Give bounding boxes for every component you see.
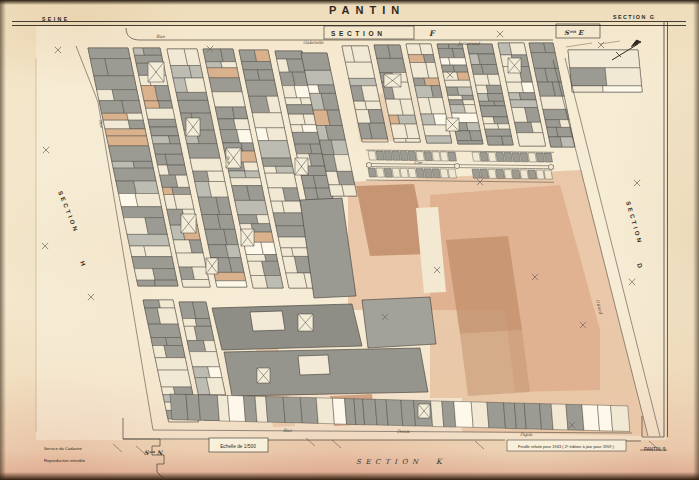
street-label-rue-north: Rue (156, 34, 165, 39)
office-line2: Reproduction interdite (44, 458, 86, 463)
east-section-word: SECTION (625, 201, 643, 246)
west-section-letter: H (79, 260, 87, 267)
map-title: PANTIN (329, 4, 405, 16)
south-section-letter: K (436, 457, 443, 466)
street-label-josserand: Josserand (457, 41, 481, 46)
office-line1: Service du Cadastre (44, 446, 83, 451)
northeast-section-label: Sᵒⁿ E (564, 29, 585, 37)
street-label-gabrielle: Gabrielle (303, 40, 324, 45)
cadastral-map-sheet: SEINE PANTIN SECTION G SECTION F Sᵒⁿ E S… (0, 0, 699, 480)
scale-label: Echelle de 1/500 (220, 444, 256, 449)
south-section-word: SECTION (356, 458, 423, 466)
map-drawing: SEINE PANTIN SECTION G SECTION F Sᵒⁿ E S… (0, 0, 699, 480)
street-label-rue-west: Rue (98, 119, 104, 129)
west-section-word: SECTION (57, 190, 79, 234)
street-label-denis: Denis (397, 429, 410, 434)
revision-note: Feuille refaite pour 1943 ( 2ᵉ édition à… (518, 444, 615, 449)
cite-housing-row (368, 151, 553, 179)
street-label-rue-south: Rue (283, 428, 292, 433)
north-section-letter: F (429, 29, 436, 38)
north-section-word: SECTION (331, 30, 386, 37)
southwest-section-label: Sᵒⁿ N (144, 449, 164, 456)
sheet-ref-label: SECTION G (613, 14, 655, 20)
cite-label: Cité (414, 160, 423, 165)
east-section-letter: D (636, 262, 644, 269)
street-label-papin: Papin (520, 432, 533, 437)
department-label: SEINE (42, 16, 70, 22)
corner-ref: PANTIN. 5 (644, 447, 666, 452)
